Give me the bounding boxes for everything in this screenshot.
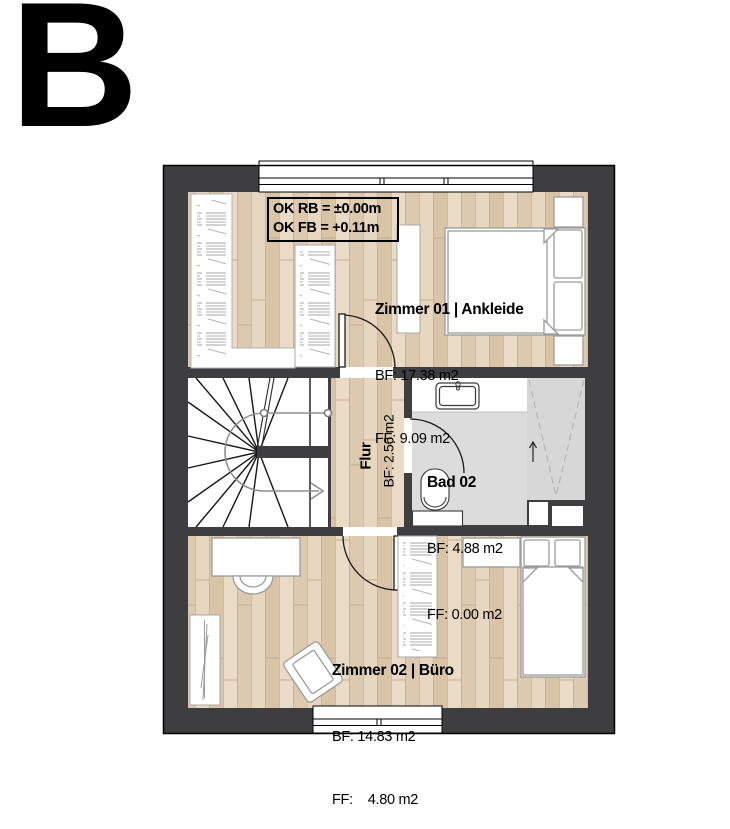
bath-cabinet-small (529, 502, 548, 525)
bed-zimmer02 (521, 537, 585, 677)
flur-bf: BF: 2.56 m2 (379, 415, 400, 488)
flur-name: Flur (356, 442, 377, 469)
level-annotation-line1: OK RB = ±0.00m (273, 200, 397, 219)
stair-spine-wall (257, 446, 331, 458)
sideboard (190, 615, 220, 705)
zimmer01-name: Zimmer 01 | Ankleide (375, 300, 524, 320)
zimmer02-ff: FF: 4.80 m2 (332, 790, 454, 811)
zimmer02-name: Zimmer 02 | Büro (332, 661, 454, 681)
nightstand-top (554, 197, 583, 227)
pillow (555, 540, 580, 566)
zimmer02-door-opening (343, 527, 397, 536)
nightstand-bottom (554, 336, 583, 365)
bad02-label: Bad 02 BF: 4.88 m2 FF: 0.00 m2 (427, 428, 503, 648)
zimmer02-bf: BF: 14.83 m2 (332, 727, 454, 748)
bath-cabinet-wide (552, 506, 583, 526)
bad02-name: Bad 02 (427, 472, 503, 494)
bad02-bf: BF: 4.88 m2 (427, 538, 503, 560)
wardrobe-left (197, 200, 226, 360)
pillow (554, 282, 582, 330)
plan-letter: B (10, 0, 137, 154)
zimmer01-bf: BF: 17.38 m2 (375, 366, 524, 387)
pillow (524, 540, 549, 566)
desk (212, 538, 300, 576)
level-annotation-box: OK RB = ±0.00m OK FB = +0.11m (267, 197, 399, 242)
pillow (554, 230, 582, 278)
shower-area (527, 378, 585, 500)
level-annotation-line2: OK FB = +0.11m (273, 219, 397, 238)
floor-plan-page: B OK RB = ±0.00m OK FB = +0.11m Zimmer 0… (0, 0, 730, 829)
zimmer01-door-leaf (339, 314, 345, 367)
zimmer02-label: Zimmer 02 | Büro BF: 14.83 m2 FF: 4.80 m… (332, 619, 454, 829)
